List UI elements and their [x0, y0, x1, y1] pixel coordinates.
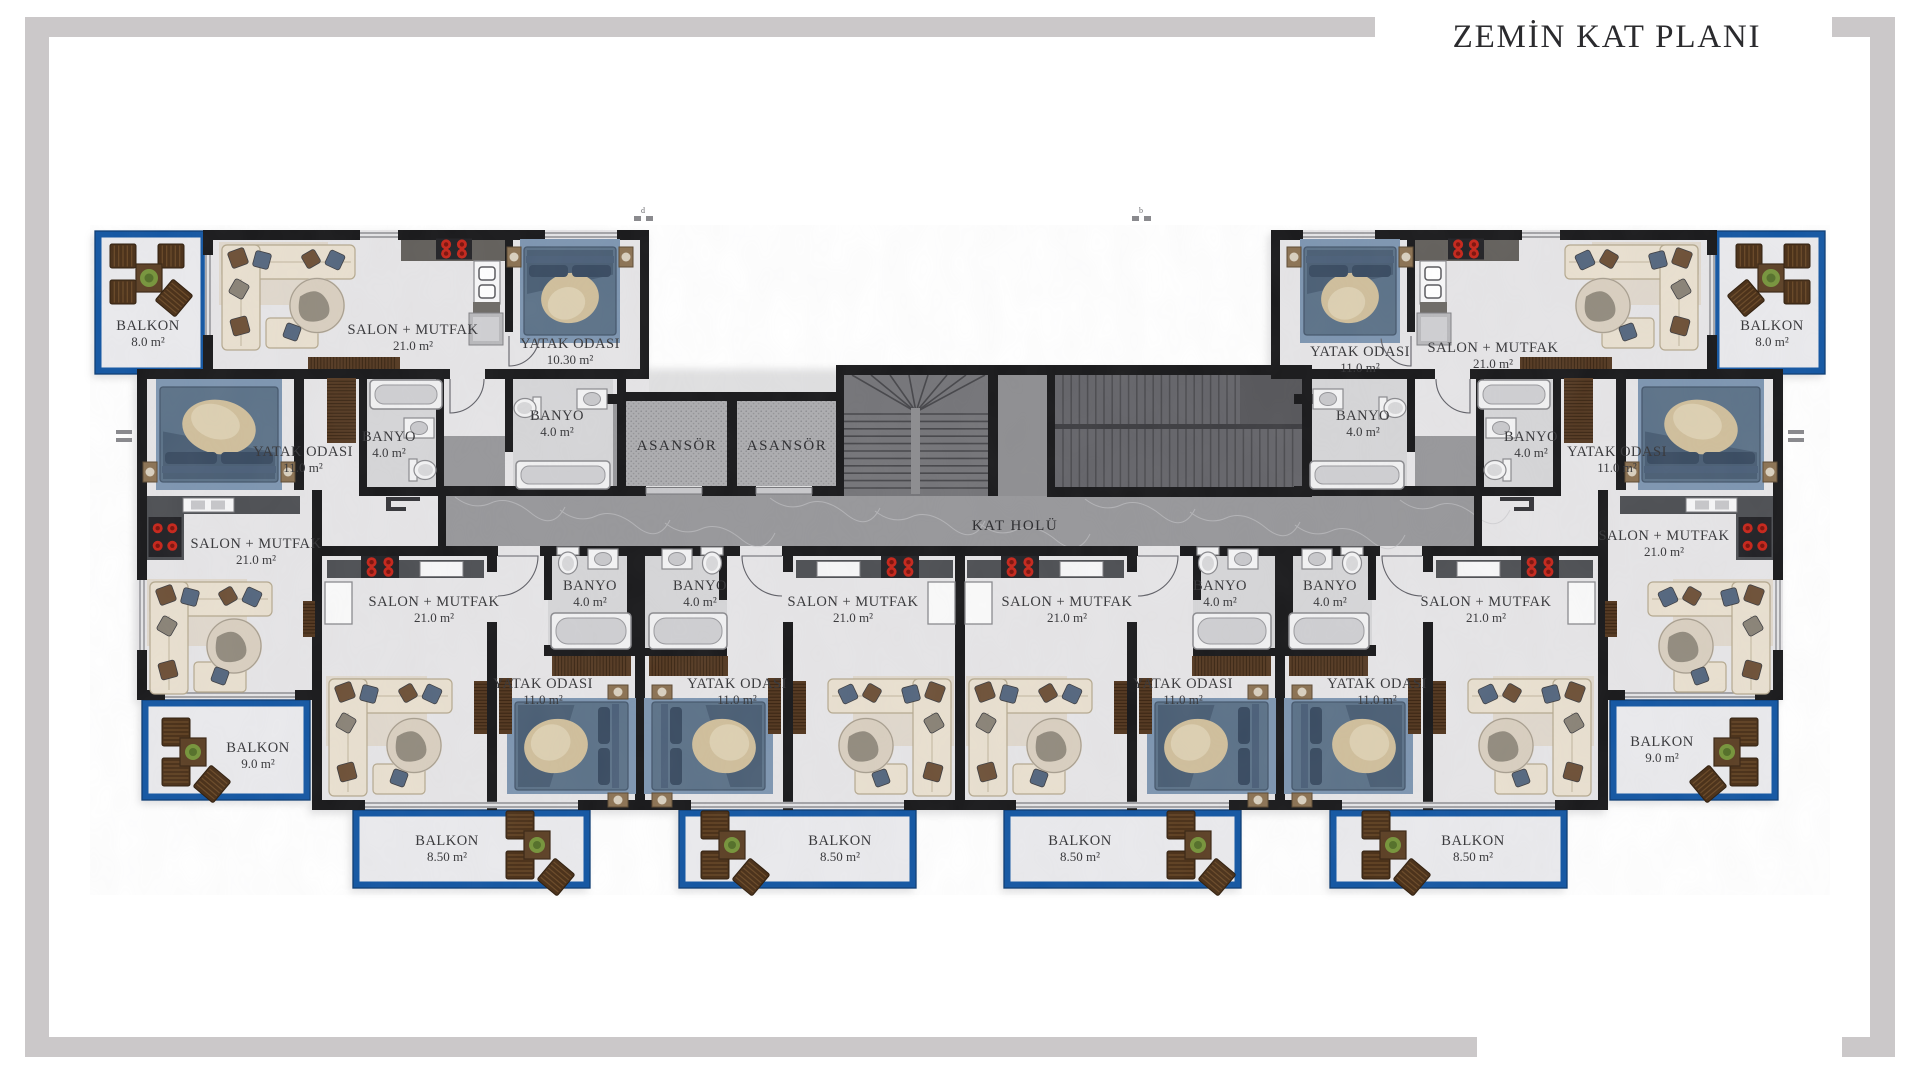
svg-text:11.0 m²: 11.0 m²: [717, 692, 757, 707]
svg-text:BANYO: BANYO: [1303, 578, 1357, 594]
svg-text:21.0 m²: 21.0 m²: [1473, 356, 1513, 371]
svg-text:ASANSÖR: ASANSÖR: [637, 437, 718, 454]
svg-text:BANYO: BANYO: [1504, 429, 1558, 445]
svg-text:21.0 m²: 21.0 m²: [1047, 610, 1087, 625]
svg-text:YATAK ODASI: YATAK ODASI: [1327, 676, 1427, 692]
svg-text:BANYO: BANYO: [1193, 578, 1247, 594]
svg-text:11.0 m²: 11.0 m²: [1357, 692, 1397, 707]
svg-text:YATAK ODASI: YATAK ODASI: [1567, 444, 1667, 460]
svg-text:SALON + MUTFAK: SALON + MUTFAK: [788, 594, 919, 610]
svg-text:8.50 m²: 8.50 m²: [427, 849, 467, 864]
svg-text:ASANSÖR: ASANSÖR: [747, 437, 828, 454]
svg-text:BALKON: BALKON: [1630, 734, 1693, 750]
svg-text:YATAK ODASI: YATAK ODASI: [493, 676, 593, 692]
svg-text:9.0 m²: 9.0 m²: [1645, 750, 1679, 765]
svg-text:4.0 m²: 4.0 m²: [1514, 445, 1548, 460]
svg-text:BANYO: BANYO: [530, 408, 584, 424]
svg-text:11.0 m²: 11.0 m²: [1163, 692, 1203, 707]
svg-text:KAT HOLÜ: KAT HOLÜ: [972, 517, 1058, 534]
svg-text:21.0 m²: 21.0 m²: [1644, 544, 1684, 559]
svg-text:BALKON: BALKON: [1740, 318, 1803, 334]
svg-text:21.0 m²: 21.0 m²: [1466, 610, 1506, 625]
svg-text:11.0 m²: 11.0 m²: [1597, 460, 1637, 475]
svg-text:8.50 m²: 8.50 m²: [1060, 849, 1100, 864]
svg-text:SALON + MUTFAK: SALON + MUTFAK: [1428, 340, 1559, 356]
svg-text:4.0 m²: 4.0 m²: [372, 445, 406, 460]
svg-text:YATAK ODASI: YATAK ODASI: [1310, 344, 1410, 360]
svg-text:ZEMİN KAT PLANI: ZEMİN KAT PLANI: [1453, 19, 1762, 55]
svg-text:8.0 m²: 8.0 m²: [1755, 334, 1789, 349]
svg-text:8.50 m²: 8.50 m²: [1453, 849, 1493, 864]
svg-text:4.0 m²: 4.0 m²: [1203, 594, 1237, 609]
svg-text:4.0 m²: 4.0 m²: [683, 594, 717, 609]
svg-text:SALON + MUTFAK: SALON + MUTFAK: [1421, 594, 1552, 610]
svg-text:BALKON: BALKON: [226, 740, 289, 756]
svg-text:4.0 m²: 4.0 m²: [573, 594, 607, 609]
svg-text:11.0 m²: 11.0 m²: [283, 460, 323, 475]
svg-text:BALKON: BALKON: [1048, 833, 1111, 849]
svg-text:8.50 m²: 8.50 m²: [820, 849, 860, 864]
svg-text:BALKON: BALKON: [1441, 833, 1504, 849]
svg-text:BALKON: BALKON: [808, 833, 871, 849]
svg-text:b: b: [1139, 206, 1143, 215]
svg-text:SALON + MUTFAK: SALON + MUTFAK: [348, 322, 479, 338]
svg-text:11.0 m²: 11.0 m²: [523, 692, 563, 707]
svg-text:SALON + MUTFAK: SALON + MUTFAK: [191, 536, 322, 552]
svg-text:21.0 m²: 21.0 m²: [833, 610, 873, 625]
svg-text:BALKON: BALKON: [415, 833, 478, 849]
svg-text:21.0 m²: 21.0 m²: [414, 610, 454, 625]
svg-text:4.0 m²: 4.0 m²: [1346, 424, 1380, 439]
svg-text:4.0 m²: 4.0 m²: [1313, 594, 1347, 609]
svg-text:9.0 m²: 9.0 m²: [241, 756, 275, 771]
svg-text:21.0 m²: 21.0 m²: [393, 338, 433, 353]
svg-text:d: d: [641, 206, 645, 215]
svg-text:4.0 m²: 4.0 m²: [540, 424, 574, 439]
svg-text:11.0 m²: 11.0 m²: [1340, 360, 1380, 375]
svg-text:BANYO: BANYO: [1336, 408, 1390, 424]
svg-text:YATAK ODASI: YATAK ODASI: [687, 676, 787, 692]
svg-text:SALON + MUTFAK: SALON + MUTFAK: [1002, 594, 1133, 610]
svg-text:8.0 m²: 8.0 m²: [131, 334, 165, 349]
svg-text:YATAK ODASI: YATAK ODASI: [253, 444, 353, 460]
svg-text:21.0 m²: 21.0 m²: [236, 552, 276, 567]
svg-text:YATAK ODASI: YATAK ODASI: [520, 336, 620, 352]
svg-text:BANYO: BANYO: [563, 578, 617, 594]
svg-text:SALON + MUTFAK: SALON + MUTFAK: [1599, 528, 1730, 544]
svg-text:YATAK ODASI: YATAK ODASI: [1133, 676, 1233, 692]
svg-text:BALKON: BALKON: [116, 318, 179, 334]
svg-text:BANYO: BANYO: [673, 578, 727, 594]
svg-text:SALON + MUTFAK: SALON + MUTFAK: [369, 594, 500, 610]
svg-text:BANYO: BANYO: [362, 429, 416, 445]
svg-text:10.30 m²: 10.30 m²: [547, 352, 594, 367]
